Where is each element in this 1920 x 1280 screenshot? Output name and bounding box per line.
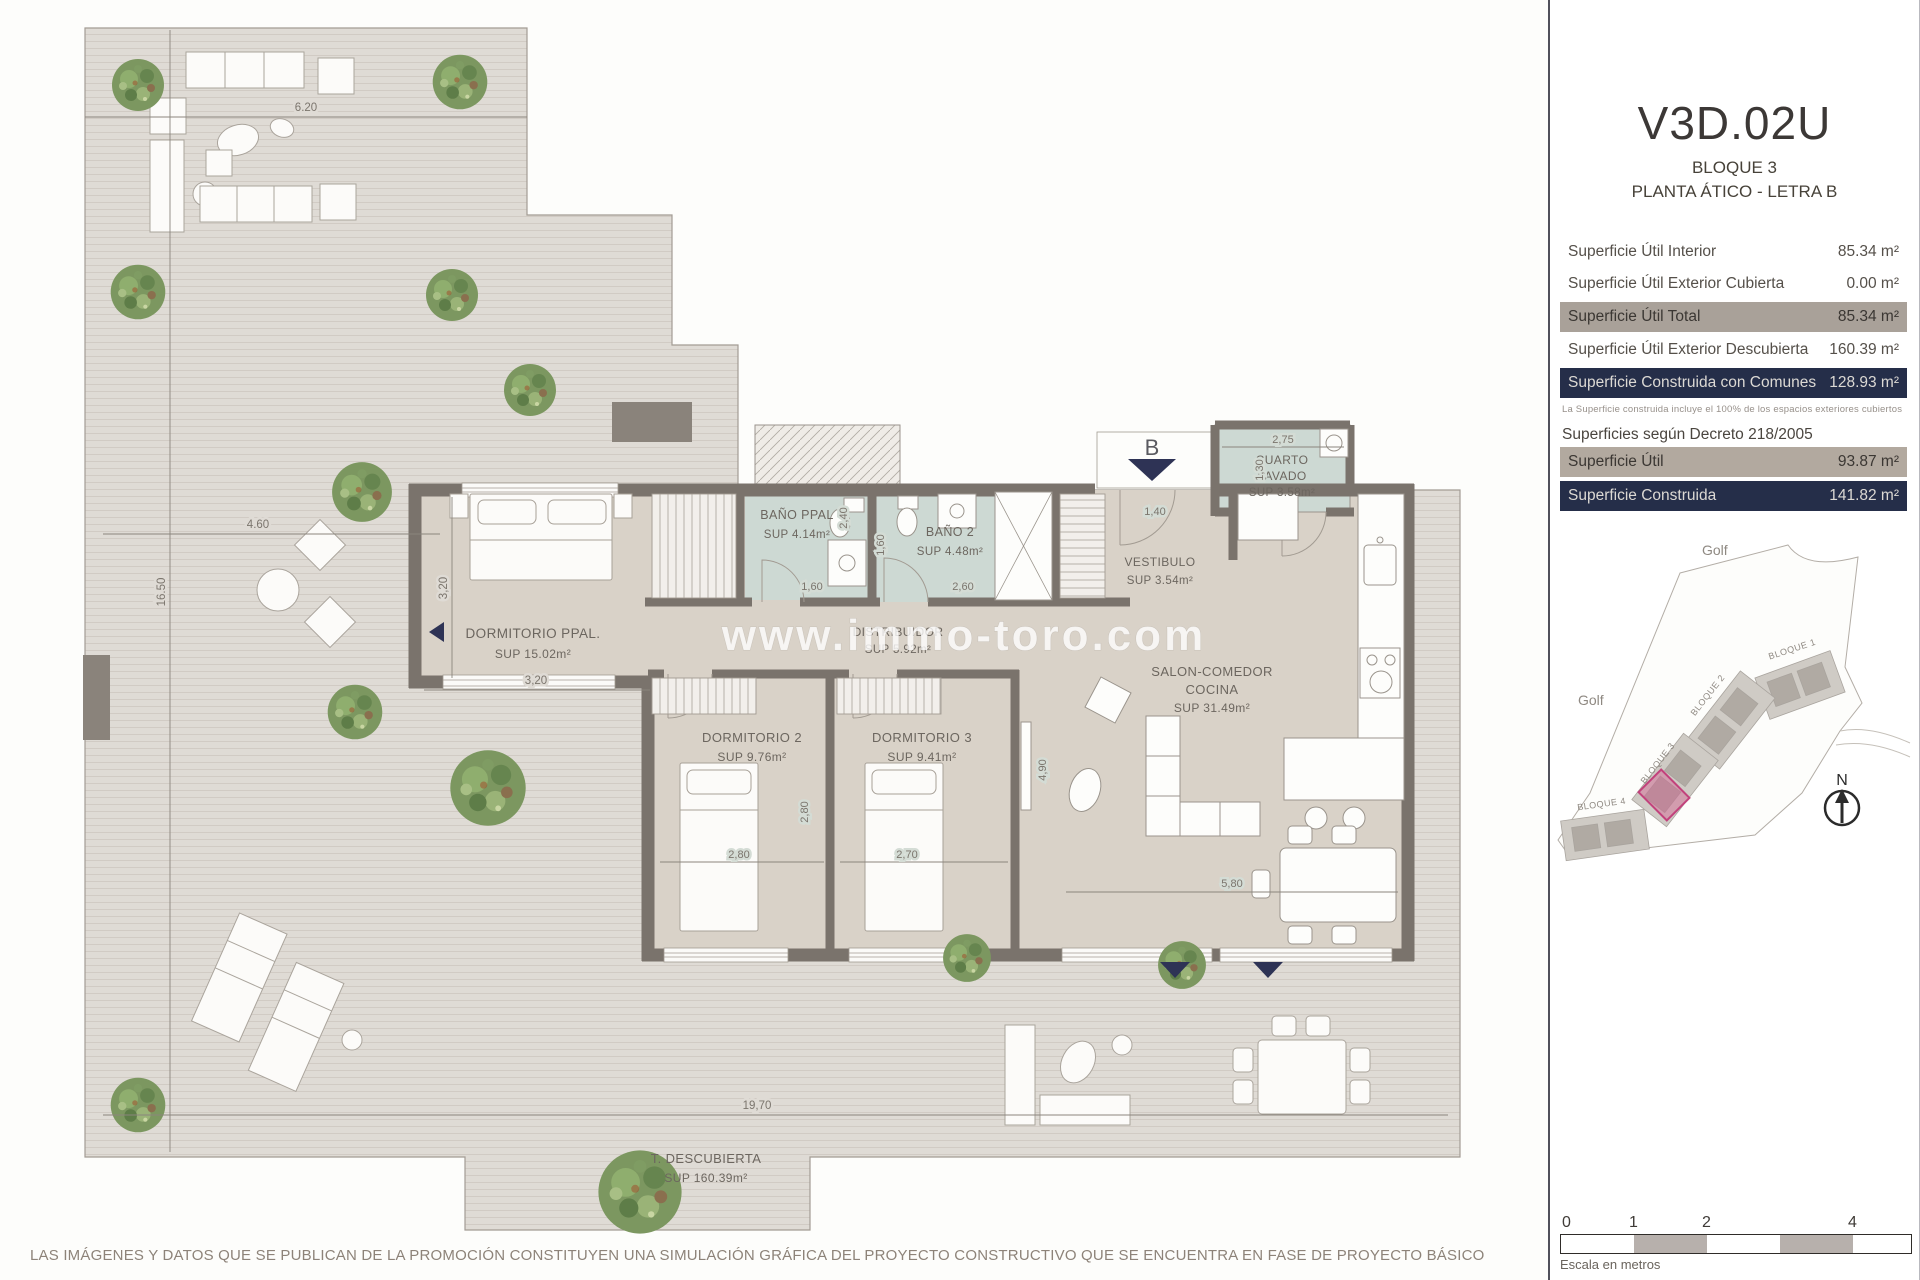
surface-row-util-interior: Superficie Útil Interior 85.34 m² <box>1560 238 1907 266</box>
svg-text:1,40: 1,40 <box>1144 506 1165 518</box>
svg-text:1,60: 1,60 <box>875 534 887 555</box>
scale-segments <box>1560 1234 1912 1254</box>
unit-code: V3D.02U <box>1550 96 1919 150</box>
room-terraza: T. DESCUBIERTA <box>651 1151 762 1166</box>
surface-row-util-ext-cubierta: Superficie Útil Exterior Cubierta 0.00 m… <box>1560 270 1907 298</box>
svg-text:SUP 31.49m²: SUP 31.49m² <box>1174 701 1250 715</box>
golf-label-top: Golf <box>1702 542 1728 558</box>
watermark: www.immo-toro.com <box>721 611 1207 660</box>
svg-text:SUP 3.54m²: SUP 3.54m² <box>1127 575 1193 587</box>
decree-row-construida: Superficie Construida 141.82 m² <box>1560 481 1907 511</box>
decree-heading: Superficies según Decreto 218/2005 <box>1562 426 1907 444</box>
compass-icon: N <box>1825 772 1859 825</box>
site-road <box>1836 730 1910 758</box>
svg-text:SUP 160.39m²: SUP 160.39m² <box>664 1171 747 1185</box>
svg-text:SUP 4.48m²: SUP 4.48m² <box>917 546 983 558</box>
svg-text:5,80: 5,80 <box>1221 878 1242 890</box>
decree-table: Superficie Útil 93.87 m² Superficie Cons… <box>1560 447 1907 515</box>
unit-floor: PLANTA ÁTICO - LETRA B <box>1550 182 1919 202</box>
svg-text:2,40: 2,40 <box>838 507 850 528</box>
svg-text:2,60: 2,60 <box>952 581 973 593</box>
svg-text:1,30: 1,30 <box>1254 459 1266 480</box>
surface-row-util-ext-descubierta: Superficie Útil Exterior Descubierta 160… <box>1560 336 1907 364</box>
room-bano-ppal: BAÑO PPAL <box>760 508 834 522</box>
floor-plan-page: B DORMITORIO PPAL. SUP 15.02m² BAÑO PPAL… <box>0 0 1920 1280</box>
svg-text:6.20: 6.20 <box>295 102 317 114</box>
svg-text:SUP 9.41m²: SUP 9.41m² <box>887 750 956 764</box>
room-dormitorio-2: DORMITORIO 2 <box>702 730 802 745</box>
shaft-block <box>612 402 692 442</box>
disclaimer: LAS IMÁGENES Y DATOS QUE SE PUBLICAN DE … <box>30 1247 1520 1264</box>
site-map: Golf Golf BLOQUE 1 BLOQUE 2 BLOQUE 3 BLO… <box>1550 535 1920 915</box>
floor-plan: B DORMITORIO PPAL. SUP 15.02m² BAÑO PPAL… <box>0 0 1548 1280</box>
svg-text:SUP 3.58m²: SUP 3.58m² <box>1249 487 1315 499</box>
skylight <box>755 425 900 488</box>
svg-text:1,60: 1,60 <box>801 581 822 593</box>
svg-text:16.50: 16.50 <box>156 578 168 607</box>
room-dormitorio-ppal: DORMITORIO PPAL. <box>466 626 601 641</box>
surface-table: Superficie Útil Interior 85.34 m² Superf… <box>1560 238 1907 402</box>
surface-row-construida-comunes: Superficie Construida con Comunes 128.93… <box>1560 368 1907 398</box>
svg-text:2,75: 2,75 <box>1272 434 1293 446</box>
svg-text:4.60: 4.60 <box>247 519 269 531</box>
entrance-label: B <box>1145 435 1160 460</box>
room-salon: SALON-COMEDOR <box>1151 664 1273 679</box>
scale-bar: 0 1 2 4 Escala en metros <box>1560 1214 1912 1272</box>
svg-text:2,80: 2,80 <box>799 801 811 822</box>
svg-text:19,70: 19,70 <box>743 1100 772 1112</box>
decree-row-util: Superficie Útil 93.87 m² <box>1560 447 1907 477</box>
svg-text:SUP 15.02m²: SUP 15.02m² <box>495 647 571 661</box>
svg-text:3,20: 3,20 <box>438 577 450 599</box>
scale-caption: Escala en metros <box>1560 1257 1912 1272</box>
info-panel: V3D.02U BLOQUE 3 PLANTA ÁTICO - LETRA B … <box>1548 0 1920 1280</box>
shaft-block <box>83 655 110 740</box>
svg-text:SUP 9.76m²: SUP 9.76m² <box>717 750 786 764</box>
svg-text:4,90: 4,90 <box>1037 759 1049 780</box>
surface-row-util-total: Superficie Útil Total 85.34 m² <box>1560 302 1907 332</box>
golf-label-left: Golf <box>1578 692 1604 708</box>
svg-text:2,70: 2,70 <box>896 849 917 861</box>
room-dormitorio-3: DORMITORIO 3 <box>872 730 972 745</box>
compass-n: N <box>1836 772 1848 789</box>
room-bano-2: BAÑO 2 <box>926 525 974 539</box>
scale-ticks: 0 1 2 4 <box>1560 1214 1912 1232</box>
svg-text:COCINA: COCINA <box>1186 682 1239 697</box>
svg-text:2,80: 2,80 <box>728 849 749 861</box>
surface-note: La Superficie construida incluye el 100%… <box>1562 404 1907 415</box>
room-vestibulo: VESTIBULO <box>1125 555 1196 569</box>
svg-text:SUP 4.14m²: SUP 4.14m² <box>764 529 830 541</box>
svg-text:3,20: 3,20 <box>525 675 547 687</box>
unit-block: BLOQUE 3 <box>1550 158 1919 178</box>
